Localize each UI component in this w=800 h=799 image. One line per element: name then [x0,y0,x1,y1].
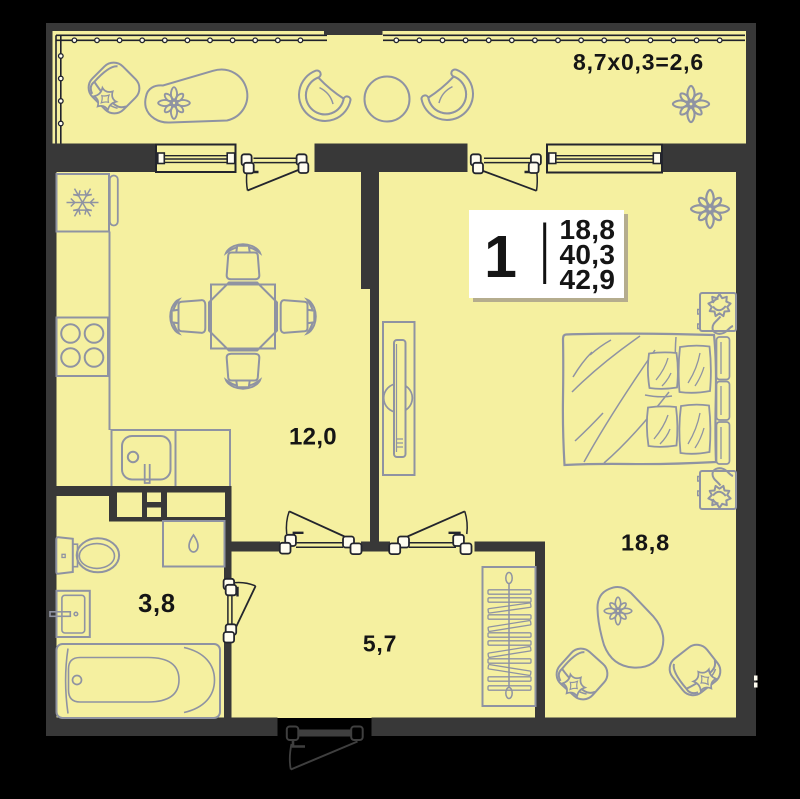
svg-text:8,7x0,3=2,6: 8,7x0,3=2,6 [573,49,704,75]
svg-text:42,9: 42,9 [560,264,616,295]
svg-text:12,0: 12,0 [289,424,337,451]
svg-text:1: 1 [484,224,517,290]
svg-text:3,8: 3,8 [138,590,176,618]
svg-text:18,8: 18,8 [621,530,670,556]
svg-text:5,7: 5,7 [363,631,397,657]
